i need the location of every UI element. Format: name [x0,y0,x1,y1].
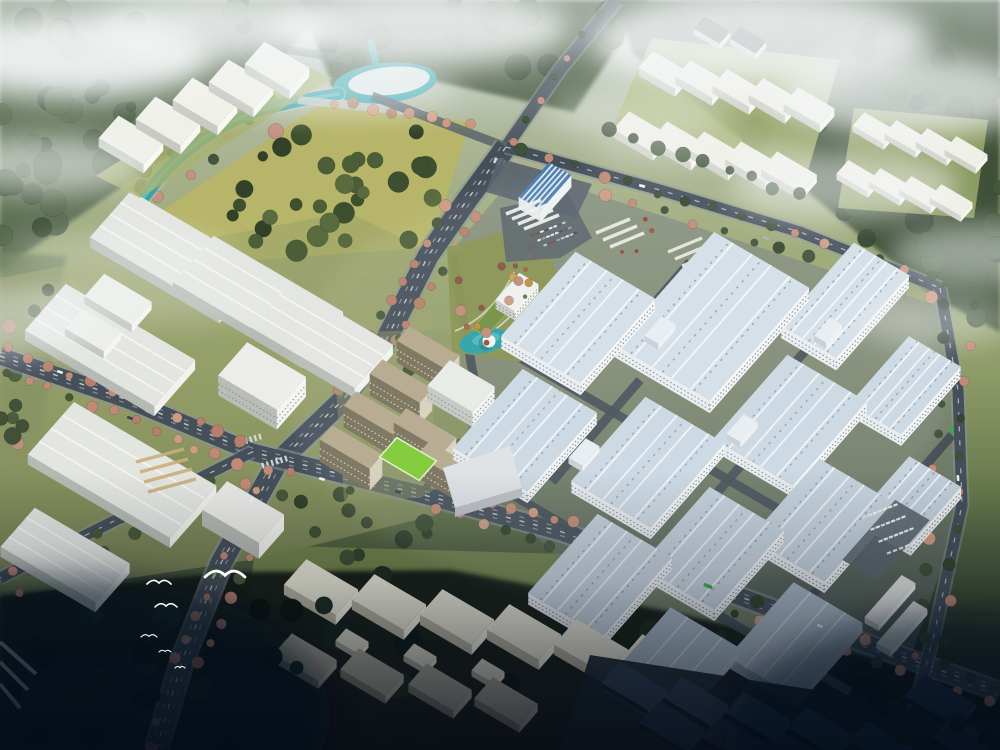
rendering-canvas [0,0,1000,750]
scene-layers [0,0,1000,750]
aerial-site-rendering [0,0,1000,750]
